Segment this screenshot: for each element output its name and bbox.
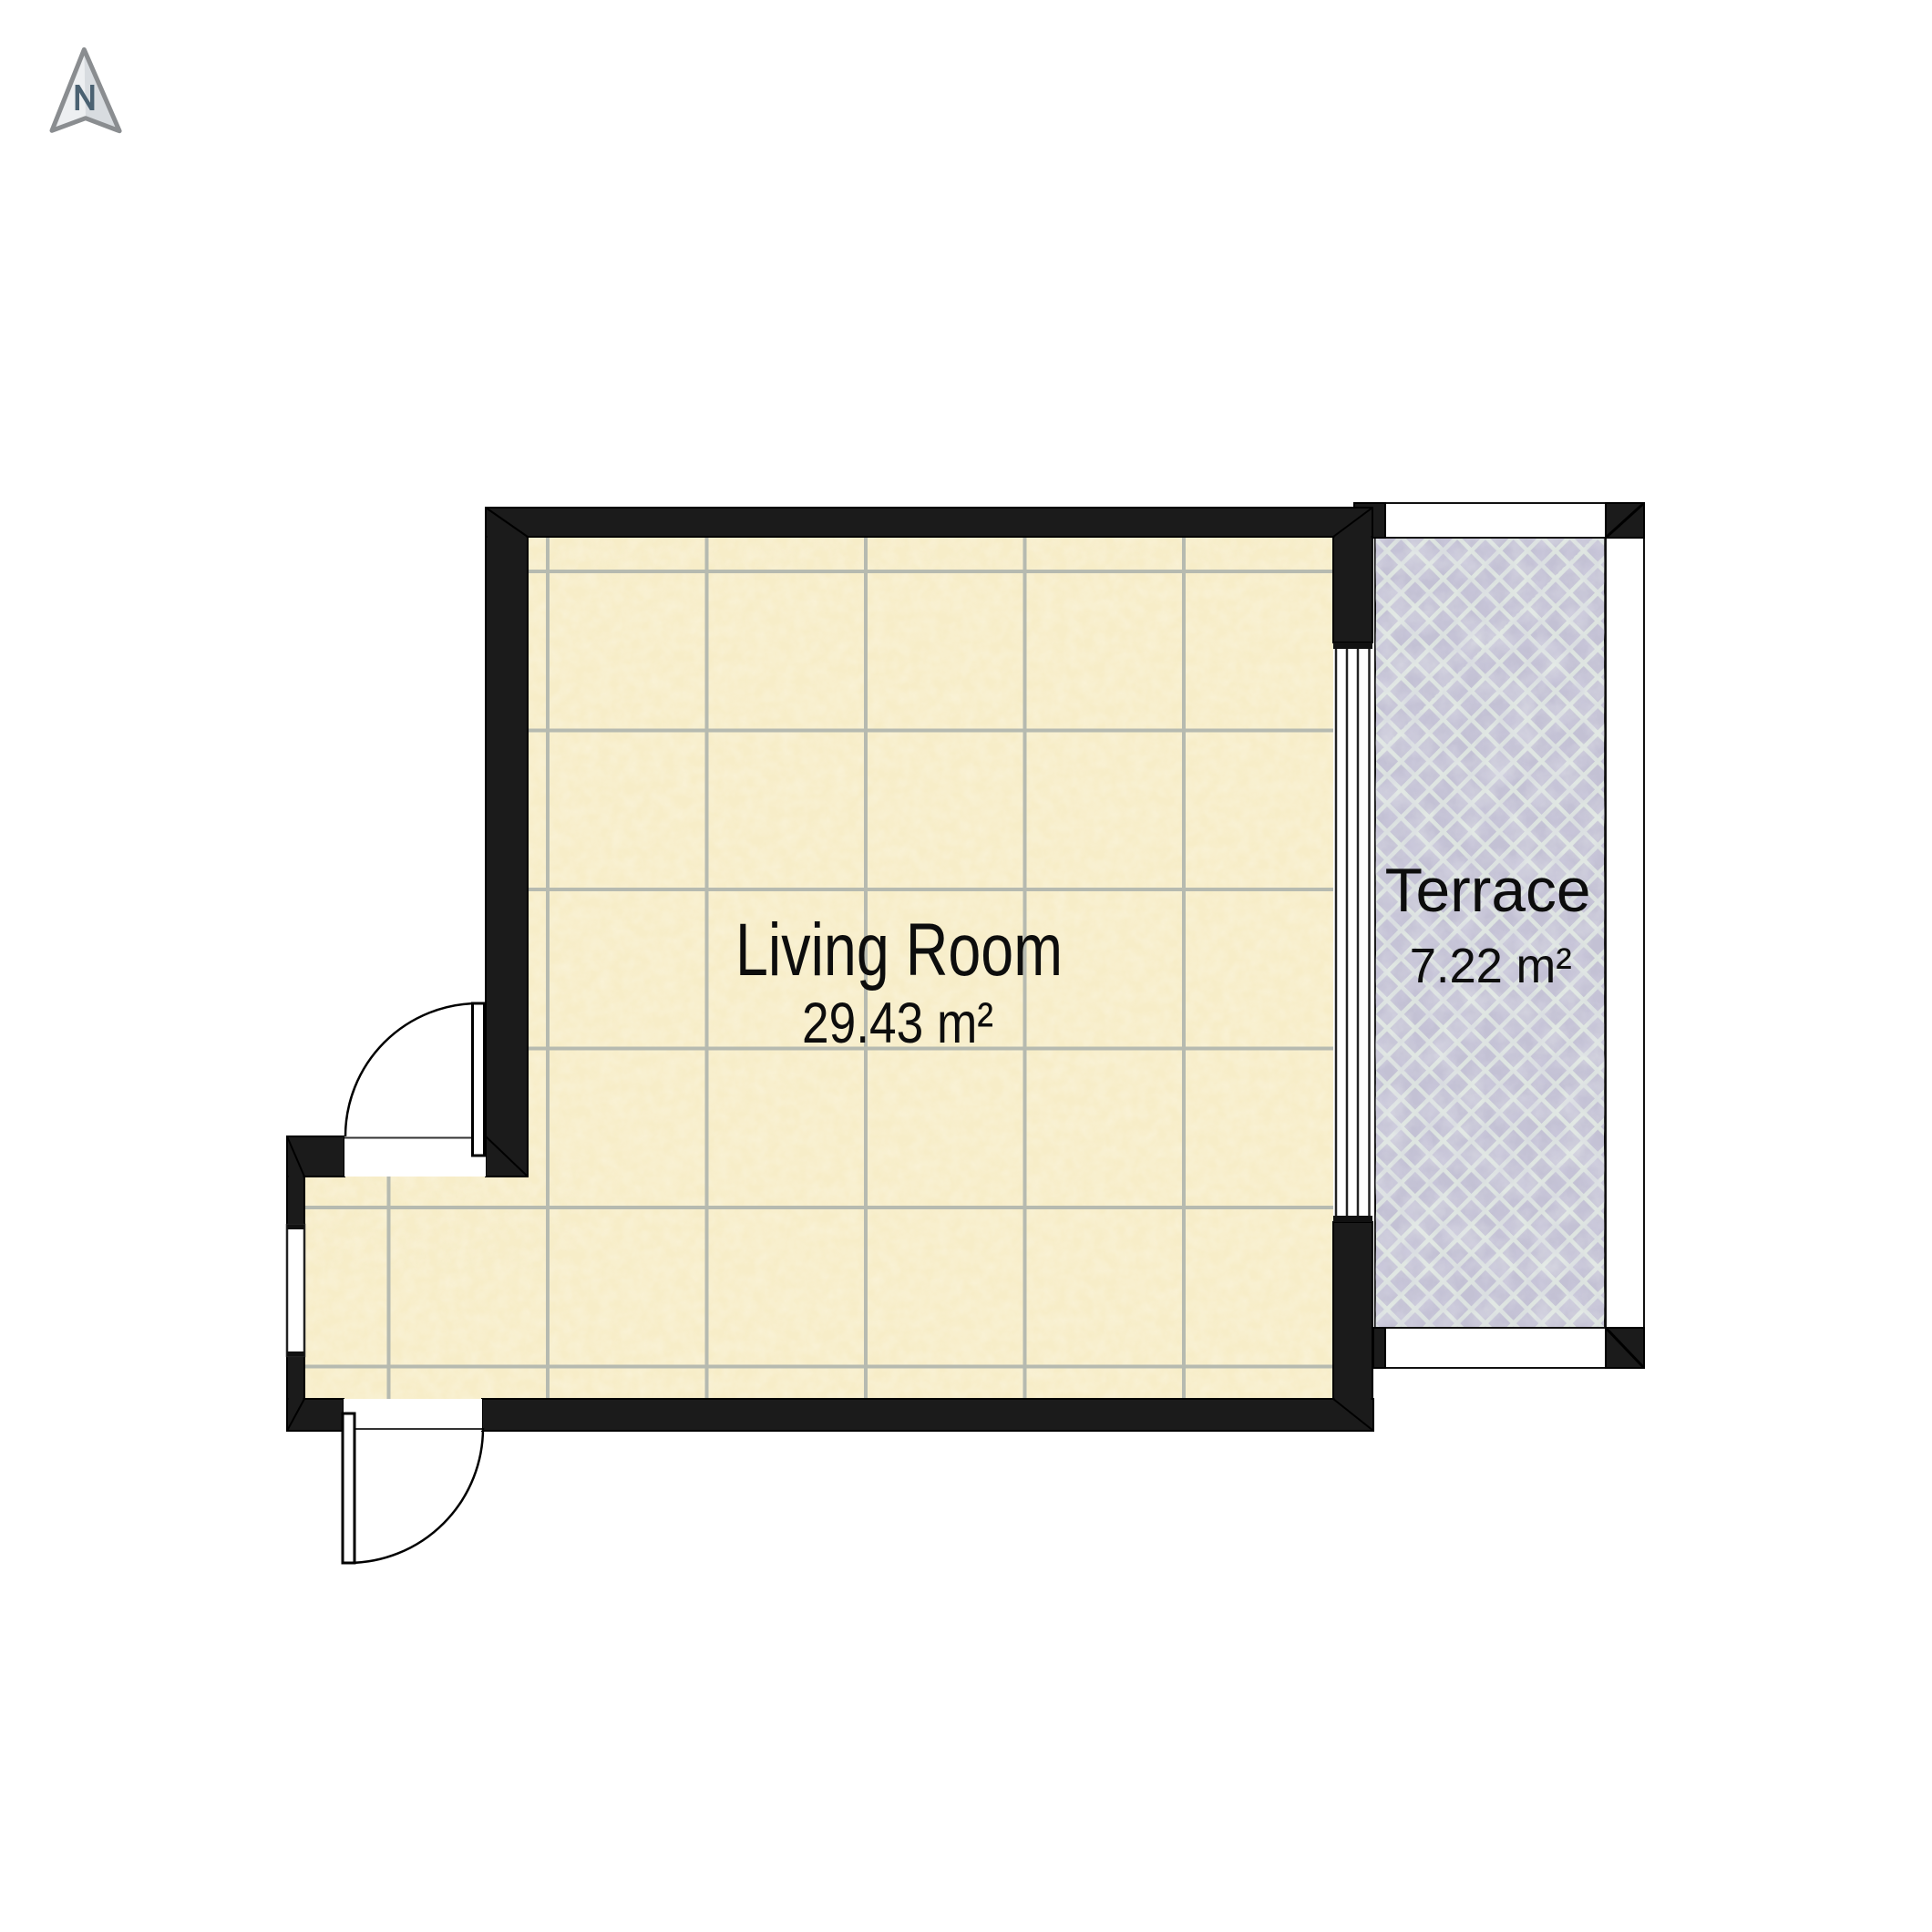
svg-text:Living Room: Living Room [735, 909, 1063, 992]
svg-text:7.22 m²: 7.22 m² [1410, 939, 1572, 993]
svg-text:Terrace: Terrace [1385, 856, 1591, 925]
svg-text:29.43 m²: 29.43 m² [802, 992, 993, 1055]
